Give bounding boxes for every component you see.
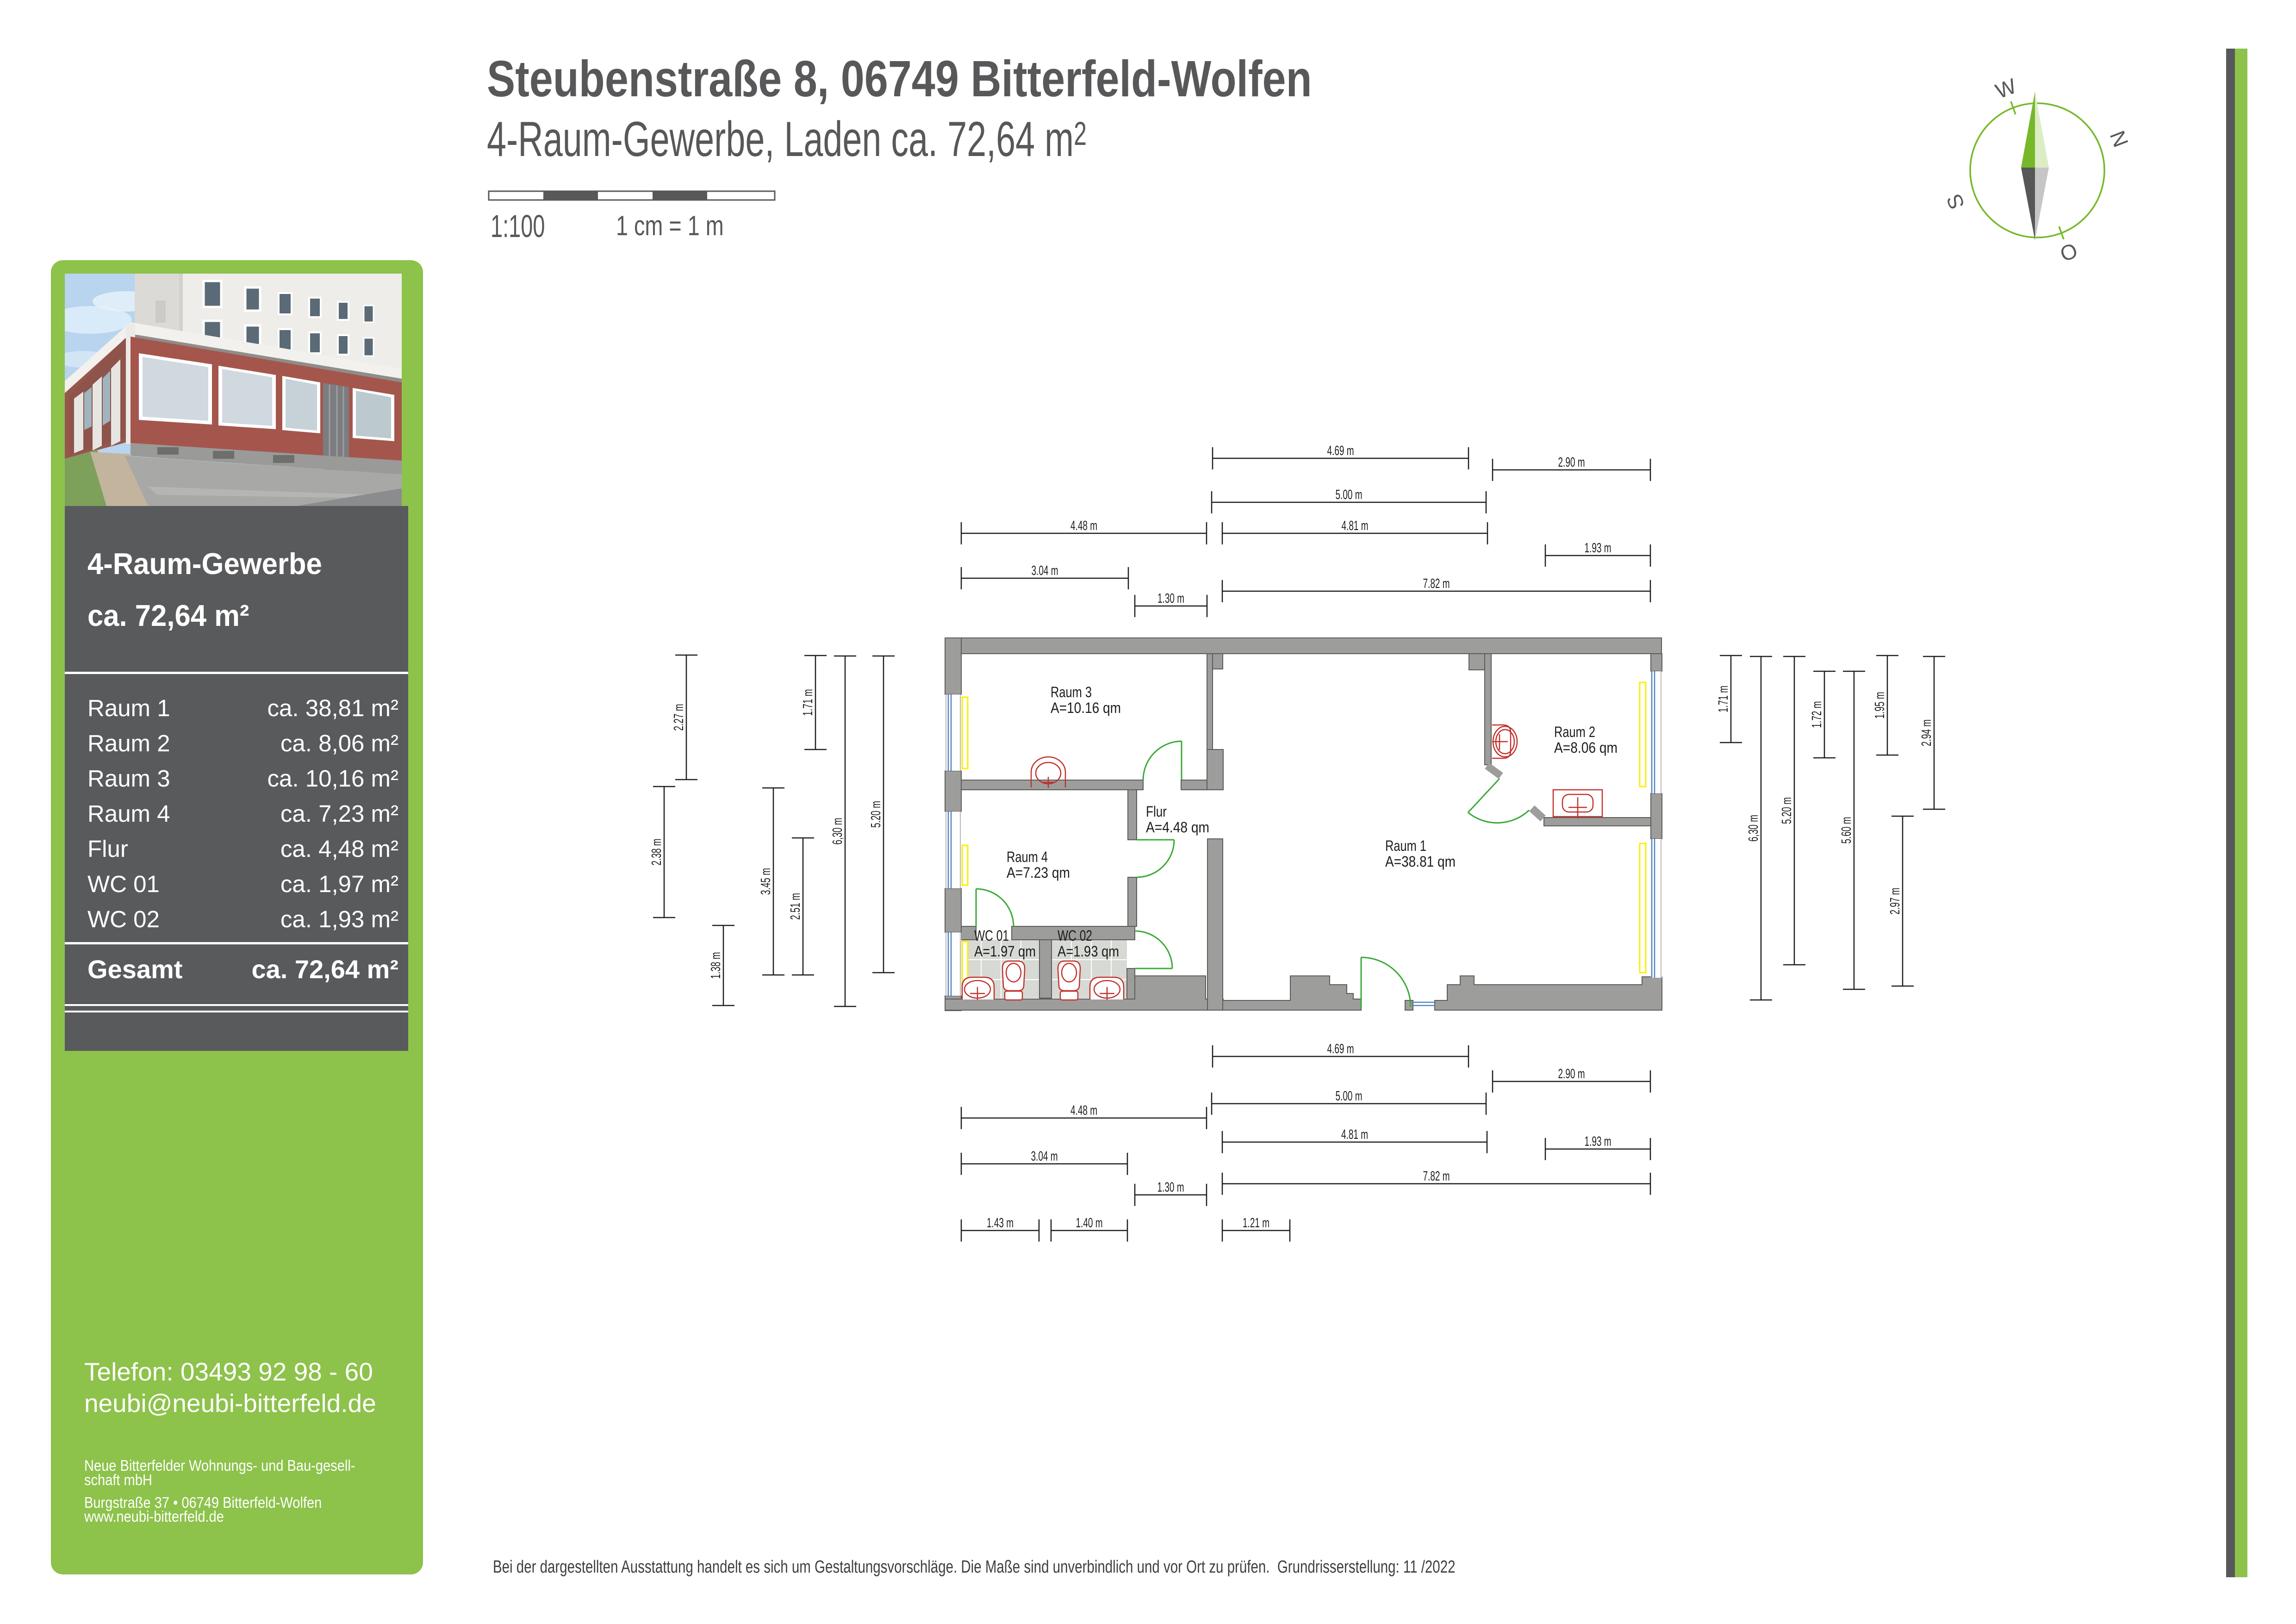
svg-text:A=8.06 qm: A=8.06 qm: [1554, 739, 1618, 756]
svg-text:1.95 m: 1.95 m: [1873, 692, 1887, 719]
svg-text:O: O: [2057, 238, 2081, 266]
svg-text:1.71 m: 1.71 m: [801, 689, 815, 716]
svg-text:WC 01: WC 01: [974, 927, 1009, 944]
svg-text:2.51 m: 2.51 m: [788, 893, 803, 920]
svg-text:1.43 m: 1.43 m: [987, 1216, 1014, 1230]
svg-text:Raum 1: Raum 1: [1385, 837, 1426, 854]
svg-text:3.04 m: 3.04 m: [1031, 1149, 1058, 1164]
svg-text:6,30 m: 6,30 m: [1746, 815, 1761, 842]
svg-text:2.94 m: 2.94 m: [1919, 719, 1934, 746]
svg-text:4.69 m: 4.69 m: [1327, 1042, 1354, 1056]
svg-text:1.93 m: 1.93 m: [1585, 541, 1612, 556]
svg-text:1.72 m: 1.72 m: [1810, 701, 1824, 728]
svg-text:4.81 m: 4.81 m: [1342, 518, 1369, 533]
svg-text:4.81 m: 4.81 m: [1341, 1127, 1368, 1142]
svg-text:1.71 m: 1.71 m: [1716, 686, 1731, 712]
svg-text:2.90 m: 2.90 m: [1558, 455, 1585, 470]
svg-text:1.38 m: 1.38 m: [709, 952, 723, 979]
svg-text:A=10.16 qm: A=10.16 qm: [1051, 700, 1121, 716]
svg-text:N: N: [2105, 127, 2133, 150]
svg-text:5.20 m: 5.20 m: [1780, 797, 1794, 824]
svg-text:Raum 3: Raum 3: [1051, 684, 1092, 700]
svg-text:5.00 m: 5.00 m: [1336, 487, 1363, 502]
svg-text:S: S: [1941, 191, 1969, 212]
svg-text:2.27 m: 2.27 m: [672, 704, 686, 731]
svg-text:1.30 m: 1.30 m: [1157, 591, 1184, 606]
svg-text:Flur: Flur: [1146, 803, 1167, 820]
svg-text:7.82 m: 7.82 m: [1423, 1169, 1450, 1184]
svg-text:6,30 m: 6,30 m: [830, 818, 845, 845]
svg-text:3.45 m: 3.45 m: [759, 868, 773, 895]
svg-text:1.40 m: 1.40 m: [1076, 1216, 1103, 1230]
svg-text:1.21 m: 1.21 m: [1243, 1216, 1269, 1230]
svg-text:W: W: [1992, 74, 2020, 103]
svg-text:2.90 m: 2.90 m: [1558, 1067, 1585, 1081]
svg-text:1.93 m: 1.93 m: [1585, 1134, 1612, 1149]
svg-text:Raum 2: Raum 2: [1554, 724, 1595, 740]
svg-text:5.20 m: 5.20 m: [869, 801, 884, 828]
svg-text:Raum 4: Raum 4: [1007, 849, 1048, 865]
svg-text:5.60 m: 5.60 m: [1839, 817, 1854, 844]
svg-text:4.48 m: 4.48 m: [1070, 518, 1097, 533]
svg-text:A=7.23 qm: A=7.23 qm: [1007, 864, 1070, 881]
svg-text:A=1.93 qm: A=1.93 qm: [1058, 943, 1119, 960]
svg-text:A=1.97 qm: A=1.97 qm: [974, 943, 1036, 960]
svg-text:A=38.81 qm: A=38.81 qm: [1385, 853, 1456, 870]
svg-text:WC 02: WC 02: [1058, 927, 1092, 944]
svg-text:2.38 m: 2.38 m: [649, 839, 664, 866]
svg-text:4.69 m: 4.69 m: [1327, 443, 1354, 458]
svg-text:4.48 m: 4.48 m: [1070, 1103, 1097, 1118]
svg-text:A=4.48 qm: A=4.48 qm: [1146, 819, 1209, 836]
svg-text:2.97 m: 2.97 m: [1888, 888, 1903, 915]
svg-text:5.00 m: 5.00 m: [1336, 1089, 1363, 1104]
svg-text:3.04 m: 3.04 m: [1032, 563, 1058, 578]
svg-text:7.82 m: 7.82 m: [1423, 576, 1450, 591]
svg-text:1.30 m: 1.30 m: [1157, 1180, 1184, 1195]
